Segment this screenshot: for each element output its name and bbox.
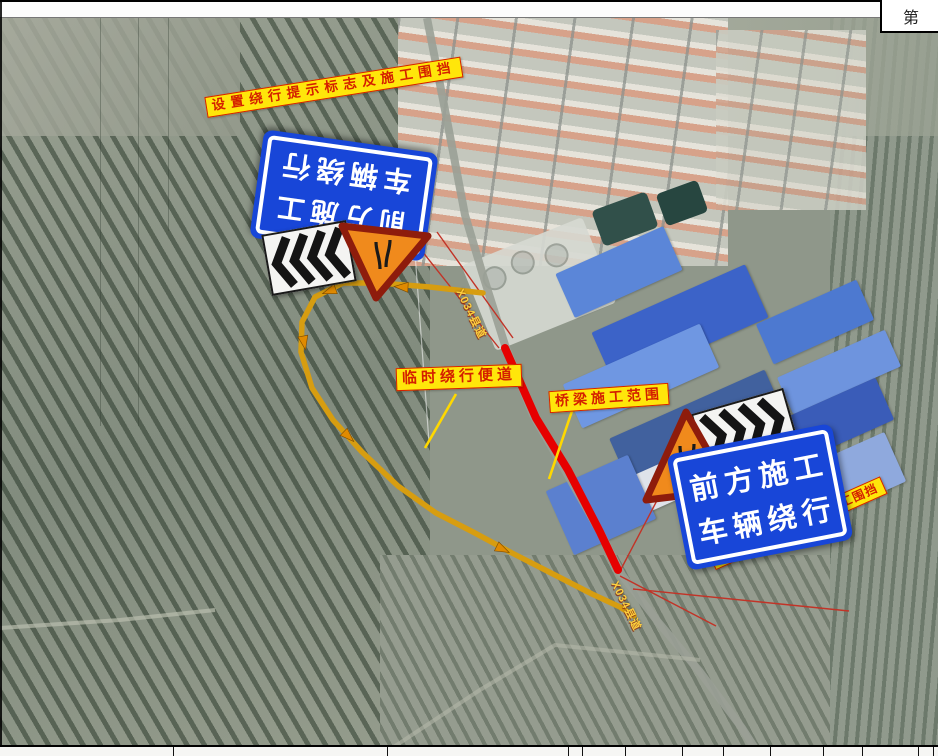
dirt-track [380,645,700,756]
dirt-track [0,610,215,628]
title-block-divider [862,747,863,756]
title-block-divider [918,747,919,756]
title-block-divider [625,747,626,756]
title-block-divider [582,747,583,756]
title-block-char: 第 [903,4,919,28]
top-margin-band [0,2,938,18]
title-block-divider [933,747,934,756]
construction-detour-plan: X034县道 X034县道 设置绕行提示标志及施工围挡 临时绕行便道 桥梁施工范… [0,0,938,756]
title-block-divider [173,747,174,756]
title-block-divider [682,747,683,756]
title-block-divider [723,747,724,756]
title-block-divider [387,747,388,756]
detour-route [301,283,634,616]
yellow-leader-line [425,394,456,448]
title-block-divider [770,747,771,756]
frame-line-left [0,0,2,756]
road-narrows-warning-icon [332,214,436,306]
bottom-title-block-strip [0,747,938,756]
title-block-divider [823,747,824,756]
title-block-cell: 第 [880,0,938,33]
annotation-temporary-detour: 临时绕行便道 [396,364,523,391]
title-block-divider [568,747,569,756]
